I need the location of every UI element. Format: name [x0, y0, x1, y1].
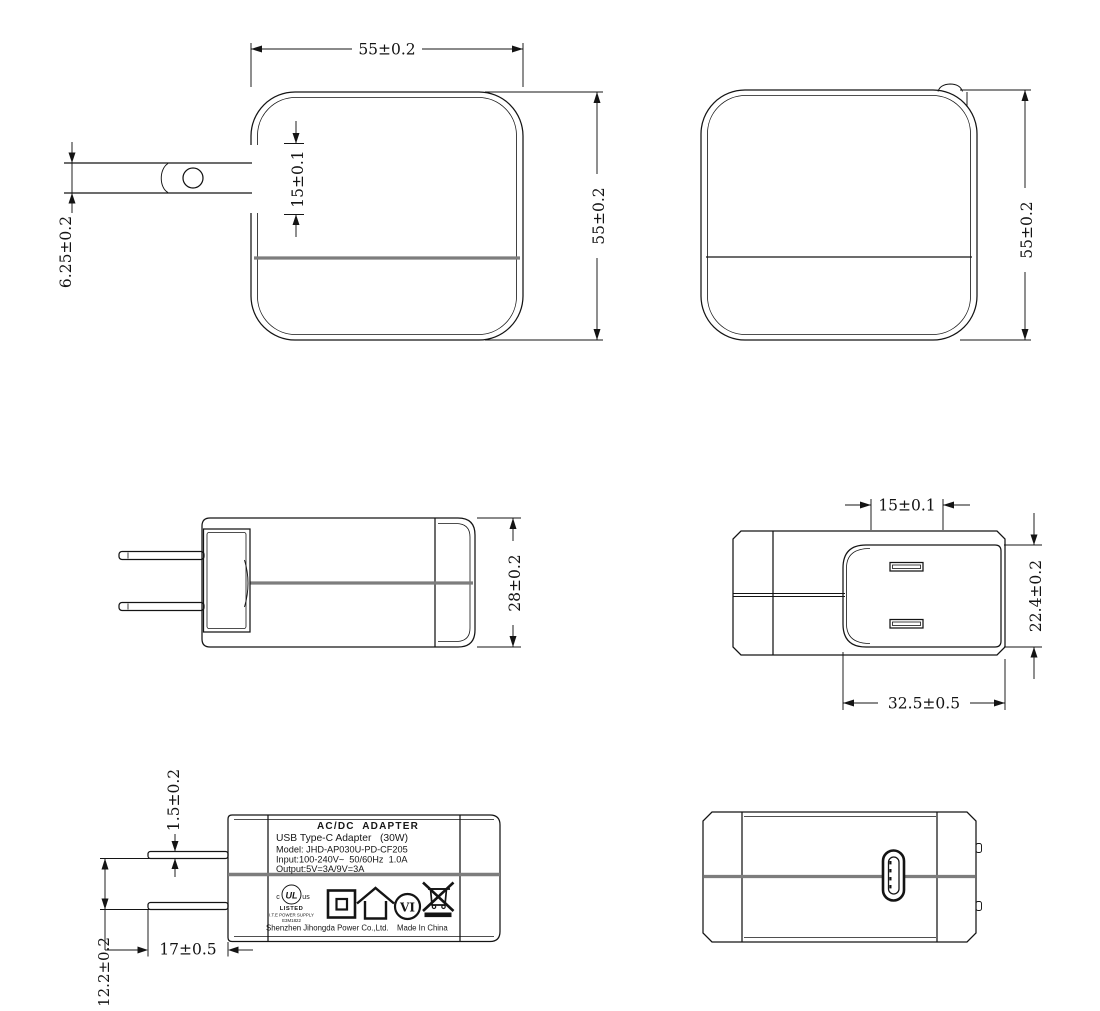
- technical-drawing-canvas: 55±0.2 55±0.2 15±0.1: [0, 0, 1100, 1011]
- dim-label-blade-thickness: 1.5±0.2: [165, 769, 183, 877]
- weee-bin-icon: [423, 883, 454, 918]
- plug-blade-bottom: [148, 903, 228, 910]
- class-ii-icon: [328, 891, 355, 918]
- blade-recess-opening: [245, 145, 259, 213]
- usb-c-port-outline: [883, 851, 904, 901]
- dim-label-blade-spacing-text: 12.2±0.2: [95, 937, 113, 1007]
- dim-side-depth: 28±0.2: [477, 518, 524, 647]
- blade-slot-top: [890, 563, 923, 572]
- arrowhead: [843, 700, 854, 707]
- arrowhead: [251, 46, 262, 53]
- arrowhead: [138, 947, 149, 954]
- ul-listed-text: LISTED: [280, 906, 304, 912]
- efficiency-vi-icon: VI: [395, 894, 420, 919]
- dim-front-height: 55±0.2: [485, 92, 608, 340]
- arrowhead: [69, 193, 76, 204]
- arrowhead: [1031, 647, 1038, 658]
- side-view: 28±0.2: [119, 518, 524, 647]
- dim-label-blade-length-text: 17±0.5: [159, 941, 216, 959]
- blade-slot-bottom-inner: [893, 622, 921, 626]
- label-model: Model: JHD-AP030U-PD-CF205: [276, 845, 408, 855]
- dim-top-plug-base-width-text: 22.4±0.2: [1027, 560, 1045, 632]
- label-company: Shenzhen Jihongda Power Co.,Ltd.: [266, 924, 389, 933]
- ul-listed-icon: UL c us LISTED I.T.E POWER SUPPLY E3M182…: [269, 885, 314, 923]
- indoor-use-icon: [357, 888, 394, 919]
- dim-front-width-text: 55±0.2: [358, 41, 415, 59]
- plug-blade-top: [119, 552, 204, 560]
- top-view: 15±0.1 22.4±0.2 32.5±0.5: [733, 497, 1045, 713]
- adapter-body-outline: [251, 92, 523, 340]
- arrowhead: [860, 502, 871, 509]
- arrowhead: [69, 153, 76, 164]
- dim-front-blade-recess: 15±0.1: [284, 121, 307, 237]
- dim-front-blade-recess-text: 15±0.1: [289, 150, 307, 207]
- dim-top-plug-base-length-text: 32.5±0.5: [888, 695, 960, 713]
- plug-blade-top: [148, 852, 228, 859]
- label-title: AC/DC ADAPTER: [317, 821, 419, 832]
- label-made-in: Made In China: [397, 924, 448, 933]
- usb-c-port: [883, 851, 904, 901]
- arrowhead: [1031, 535, 1038, 546]
- blade-hole: [183, 168, 203, 188]
- adapter-body-inner-contour: [708, 96, 971, 335]
- ul-file-number-text: E3M1822: [282, 918, 301, 923]
- arrowhead: [1022, 90, 1029, 101]
- efficiency-vi-text: VI: [399, 901, 415, 915]
- dim-top-blade-gap: 15±0.1: [845, 497, 970, 531]
- blade-slot-top-inner: [893, 565, 921, 569]
- arrowhead: [172, 859, 179, 870]
- blade-fold-arc: [161, 164, 168, 193]
- bottom-view: [703, 812, 982, 942]
- dim-back-height-text: 55±0.2: [1018, 201, 1036, 258]
- dim-front-height-text: 55±0.2: [590, 187, 608, 244]
- dim-top-blade-gap-text: 15±0.1: [878, 497, 935, 515]
- adapter-drawing: 55±0.2 55±0.2 15±0.1: [0, 0, 1100, 1011]
- ul-us-text: us: [302, 894, 310, 901]
- arrowhead: [102, 859, 109, 870]
- side-latch-tab: [976, 902, 982, 911]
- front-view: 55±0.2 55±0.2 15±0.1: [57, 41, 608, 341]
- arrowhead: [293, 215, 300, 226]
- plug-base-inner-contour: [847, 549, 871, 644]
- dim-top-plug-base-length: 32.5±0.5: [843, 652, 1005, 713]
- blade-slot-bottom: [890, 620, 923, 629]
- adapter-body-outline: [733, 531, 1005, 655]
- plug-base-outline: [204, 529, 251, 632]
- arrowhead: [1022, 329, 1029, 340]
- dim-front-width: 55±0.2: [251, 41, 523, 88]
- arrowhead: [943, 502, 954, 509]
- plug-base-outline: [843, 545, 1001, 647]
- label-output: Output:5V=3A/9V=3A: [276, 864, 365, 874]
- arrowhead: [102, 899, 109, 910]
- usb-c-pin: [889, 861, 891, 864]
- usb-c-pin: [889, 877, 891, 880]
- dim-side-depth-text: 28±0.2: [506, 554, 524, 611]
- arrowhead: [172, 841, 179, 852]
- label-input: Input:100-240V~ 50/60Hz 1.0A: [276, 855, 408, 865]
- dim-front-blade-width: 6.25±0.2: [57, 142, 76, 288]
- arrowhead: [594, 329, 601, 340]
- arrowhead: [293, 133, 300, 144]
- plug-base-inner-contour: [207, 533, 246, 629]
- label-subtitle: USB Type-C Adapter (30W): [276, 833, 408, 844]
- arrowhead: [510, 636, 517, 647]
- dim-back-height: 55±0.2: [960, 90, 1036, 340]
- arrowhead: [228, 947, 239, 954]
- arrowhead: [510, 518, 517, 529]
- dim-label-blade-spacing: 12.2±0.2: [95, 859, 150, 1007]
- arrowhead: [594, 92, 601, 103]
- plug-blade-bottom: [119, 603, 204, 611]
- side-latch-tab: [976, 844, 982, 853]
- dim-label-blade-thickness-text: 1.5±0.2: [165, 769, 183, 831]
- dim-front-blade-width-text: 6.25±0.2: [57, 216, 75, 288]
- usb-c-pin: [889, 885, 891, 888]
- ul-category-text: I.T.E POWER SUPPLY: [269, 913, 314, 918]
- ul-c-text: c: [276, 894, 280, 901]
- label-view: AC/DC ADAPTER USB Type-C Adapter (30W) M…: [95, 769, 500, 1007]
- product-label: AC/DC ADAPTER USB Type-C Adapter (30W) M…: [266, 821, 454, 933]
- arrowhead: [512, 46, 523, 53]
- arrowhead: [994, 700, 1005, 707]
- dim-label-blade-length: 17±0.5: [105, 910, 253, 959]
- usb-c-pin: [889, 869, 891, 872]
- back-view: 55±0.2: [701, 84, 1036, 340]
- ul-mark-text: UL: [286, 891, 298, 901]
- dim-top-plug-base-width: 22.4±0.2: [1004, 513, 1045, 679]
- adapter-body-outline: [701, 90, 977, 340]
